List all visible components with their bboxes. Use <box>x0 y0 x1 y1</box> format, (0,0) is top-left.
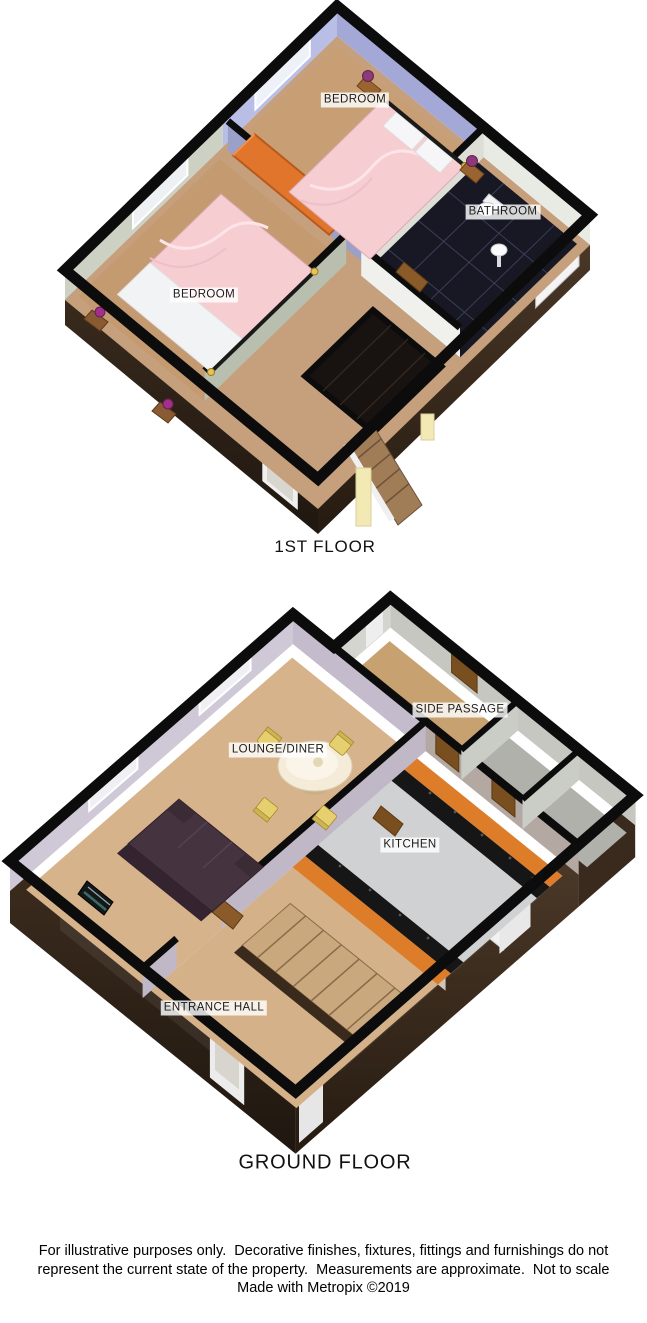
floor-title-ground: GROUND FLOOR <box>239 1152 412 1175</box>
floorplan-art <box>0 0 647 1323</box>
room-label-bedroom-front: BEDROOM <box>321 93 389 108</box>
disclaimer-line-1: For illustrative purposes only. Decorati… <box>0 1242 647 1261</box>
lamp <box>363 71 374 82</box>
disclaimer-text: For illustrative purposes only. Decorati… <box>0 1242 647 1298</box>
lamp <box>467 156 478 167</box>
disclaimer-line-3: Made with Metropix ©2019 <box>0 1279 647 1298</box>
room-label-bathroom: BATHROOM <box>466 205 541 220</box>
bedside-table <box>152 399 176 423</box>
disclaimer-line-2: represent the current state of the prope… <box>0 1261 647 1280</box>
room-label-entrance-hall: ENTRANCE HALL <box>161 1001 267 1016</box>
lamp <box>163 399 173 409</box>
room-label-kitchen: KITCHEN <box>380 838 439 853</box>
room-label-lounge-diner: LOUNGE/DINER <box>229 743 327 758</box>
floorplan-canvas: BEDROOM BATHROOM BEDROOM SIDE PASSAGE LO… <box>0 0 647 1323</box>
first-floor-illustration <box>0 0 590 534</box>
stair-post <box>421 414 434 440</box>
room-label-bedroom-rear: BEDROOM <box>170 288 238 303</box>
stair-post <box>356 468 371 526</box>
ground-floor-illustration <box>10 598 635 1154</box>
floor-title-first: 1ST FLOOR <box>274 537 375 557</box>
room-label-side-passage: SIDE PASSAGE <box>413 703 508 718</box>
